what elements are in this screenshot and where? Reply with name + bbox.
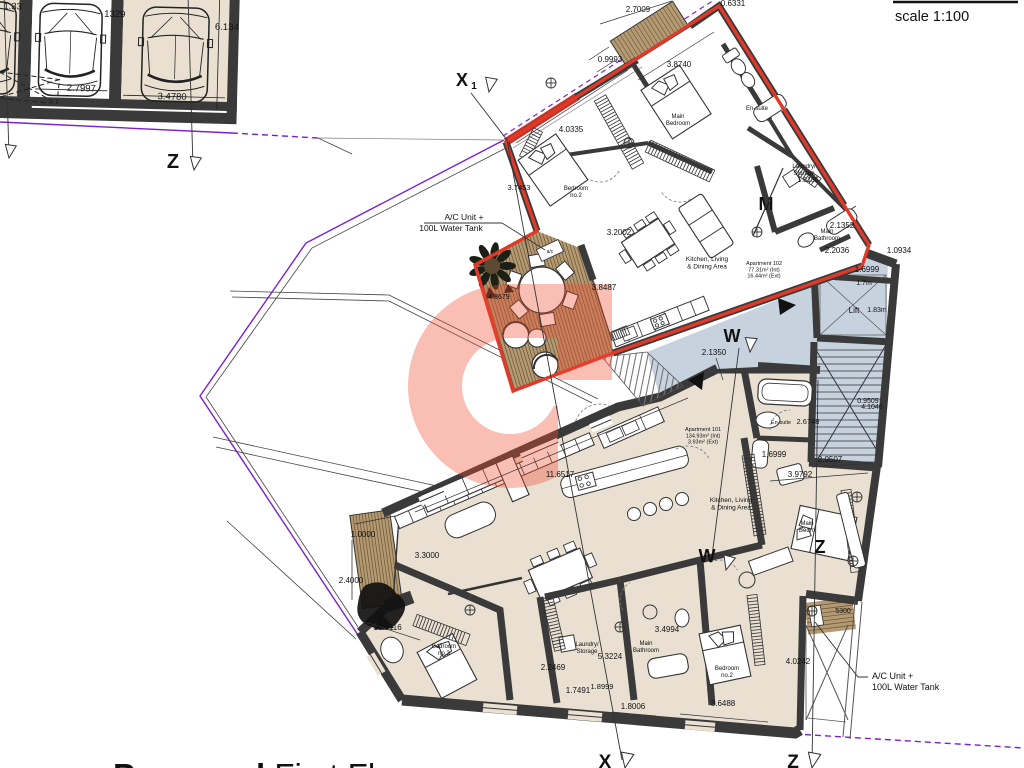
svg-text:3.4994: 3.4994 bbox=[655, 625, 680, 634]
svg-text:Main: Main bbox=[639, 641, 652, 647]
svg-text:5300: 5300 bbox=[835, 608, 851, 615]
svg-text:2.7009: 2.7009 bbox=[626, 5, 651, 14]
svg-text:& Dining Area: & Dining Area bbox=[687, 263, 727, 270]
svg-text:Proposed First Floor: Proposed First Floor bbox=[113, 757, 423, 768]
svg-text:2.2036: 2.2036 bbox=[825, 246, 850, 255]
svg-text:5.3224: 5.3224 bbox=[598, 652, 623, 661]
svg-text:1.8136: 1.8136 bbox=[797, 177, 819, 184]
svg-text:1.0934: 1.0934 bbox=[887, 246, 912, 255]
svg-text:2.6748: 2.6748 bbox=[797, 417, 820, 426]
svg-text:3.3000: 3.3000 bbox=[415, 551, 440, 560]
svg-text:3.2002: 3.2002 bbox=[607, 228, 632, 237]
svg-text:3.7453: 3.7453 bbox=[508, 183, 531, 192]
svg-text:3.4780: 3.4780 bbox=[157, 91, 186, 103]
svg-text:4.0242: 4.0242 bbox=[786, 657, 811, 666]
svg-text:1.6999: 1.6999 bbox=[762, 450, 787, 459]
svg-text:2.7997: 2.7997 bbox=[67, 83, 96, 95]
svg-text:Z: Z bbox=[815, 537, 826, 557]
svg-text:1.83m: 1.83m bbox=[867, 307, 887, 314]
svg-text:Main: Main bbox=[671, 114, 684, 120]
svg-text:Bedro: Bedro bbox=[799, 528, 816, 534]
svg-text:no.2: no.2 bbox=[570, 193, 582, 199]
svg-text:1.6999: 1.6999 bbox=[855, 265, 880, 274]
svg-text:Bedroom: Bedroom bbox=[666, 121, 690, 127]
svg-text:11.6517: 11.6517 bbox=[546, 470, 575, 479]
svg-text:1.8999: 1.8999 bbox=[591, 682, 614, 691]
svg-text:Apartment 101: Apartment 101 bbox=[685, 427, 721, 433]
svg-text:1.7491: 1.7491 bbox=[566, 686, 591, 695]
svg-text:a/c: a/c bbox=[547, 249, 554, 255]
svg-text:77.31m² (Int): 77.31m² (Int) bbox=[748, 267, 780, 273]
svg-text:X: X bbox=[456, 70, 468, 90]
svg-text:Bathroom: Bathroom bbox=[633, 648, 659, 654]
svg-text:2.0507: 2.0507 bbox=[818, 455, 843, 464]
svg-text:134.93m² (Int): 134.93m² (Int) bbox=[686, 433, 721, 439]
svg-text:& Dining Area: & Dining Area bbox=[711, 504, 751, 511]
svg-text:100L Water Tank: 100L Water Tank bbox=[419, 223, 483, 233]
svg-text:0.9993: 0.9993 bbox=[598, 55, 623, 64]
svg-text:3.8740: 3.8740 bbox=[667, 60, 692, 69]
svg-text:Laundry/: Laundry/ bbox=[792, 164, 816, 170]
svg-text:Kitchen, Living: Kitchen, Living bbox=[686, 256, 729, 263]
svg-text:1.0000: 1.0000 bbox=[351, 530, 376, 539]
svg-text:Main: Main bbox=[800, 521, 813, 527]
svg-text:2.1352: 2.1352 bbox=[830, 221, 855, 230]
svg-text:Storage: Storage bbox=[793, 171, 815, 177]
svg-text:4.0335: 4.0335 bbox=[559, 125, 584, 134]
svg-text:Z: Z bbox=[787, 752, 799, 768]
svg-text:Bathroom: Bathroom bbox=[814, 236, 840, 242]
svg-text:Laundry/: Laundry/ bbox=[575, 642, 599, 648]
svg-text:Z: Z bbox=[167, 151, 179, 173]
svg-text:2.1350: 2.1350 bbox=[702, 348, 727, 357]
svg-text:2.4000: 2.4000 bbox=[339, 576, 364, 585]
svg-text:Bedroom: Bedroom bbox=[715, 666, 739, 672]
svg-text:Bedroom: Bedroom bbox=[564, 186, 588, 192]
svg-text:no.3: no.3 bbox=[438, 651, 450, 657]
svg-text:X: X bbox=[599, 752, 612, 768]
svg-text:Lift: Lift bbox=[849, 306, 860, 315]
svg-text:1.33: 1.33 bbox=[3, 1, 22, 12]
svg-text:Kitchen, Living: Kitchen, Living bbox=[710, 497, 753, 504]
svg-text:16.44m² (Ext): 16.44m² (Ext) bbox=[747, 274, 780, 280]
svg-text:En-suite: En-suite bbox=[771, 420, 791, 426]
svg-text:1.8006: 1.8006 bbox=[621, 702, 646, 711]
svg-text:A/C Unit +: A/C Unit + bbox=[445, 212, 484, 222]
svg-text:3.6488: 3.6488 bbox=[711, 699, 736, 708]
svg-text:2.2469: 2.2469 bbox=[541, 663, 566, 672]
svg-text:M: M bbox=[759, 194, 774, 214]
svg-text:no.2: no.2 bbox=[721, 673, 733, 679]
svg-text:4.1046: 4.1046 bbox=[861, 404, 883, 411]
svg-text:Bedroom: Bedroom bbox=[432, 644, 456, 650]
svg-text:1329: 1329 bbox=[104, 9, 125, 21]
svg-text:3.93m² (Ext): 3.93m² (Ext) bbox=[688, 440, 718, 446]
svg-text:1.7m: 1.7m bbox=[856, 280, 872, 287]
svg-text:Storage: Storage bbox=[576, 649, 598, 655]
svg-text:1: 1 bbox=[471, 81, 477, 92]
svg-text:scale 1:100: scale 1:100 bbox=[895, 9, 969, 25]
svg-text:6.134: 6.134 bbox=[215, 22, 239, 34]
svg-text:A/C Unit +: A/C Unit + bbox=[872, 671, 913, 681]
svg-text:En-suite: En-suite bbox=[746, 106, 769, 112]
svg-text:W: W bbox=[724, 326, 741, 346]
svg-text:0.6331: 0.6331 bbox=[721, 0, 746, 8]
svg-text:Apartment 102: Apartment 102 bbox=[746, 261, 782, 267]
svg-text:4.3679: 4.3679 bbox=[488, 294, 510, 301]
svg-text:3.8487: 3.8487 bbox=[592, 283, 617, 292]
svg-text:100L Water Tank: 100L Water Tank bbox=[872, 682, 940, 692]
svg-text:W: W bbox=[699, 546, 716, 566]
